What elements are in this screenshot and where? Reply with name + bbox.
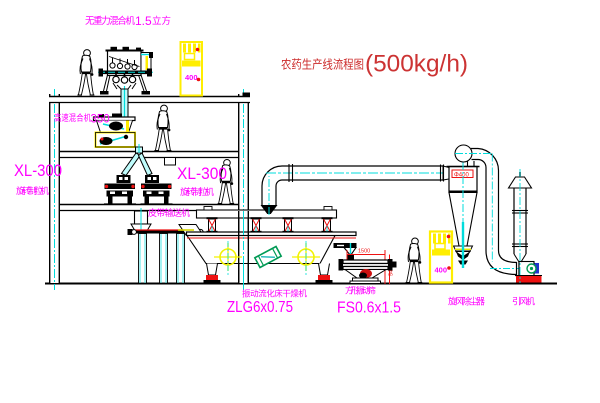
svg-text:FS0.6x1.5: FS0.6x1.5: [337, 300, 401, 317]
svg-text:1500: 1500: [358, 249, 370, 255]
svg-text:高速混合机: 高速混合机: [54, 112, 91, 123]
svg-text:(500kg/h): (500kg/h): [365, 51, 468, 78]
svg-text:振动流化床干燥机: 振动流化床干燥机: [242, 289, 307, 299]
svg-text:350: 350: [91, 114, 110, 126]
svg-text:400: 400: [435, 266, 448, 275]
svg-text:农药生产线流程图: 农药生产线流程图: [281, 57, 364, 72]
svg-text:1.5: 1.5: [135, 14, 152, 28]
svg-text:XL-300: XL-300: [177, 164, 227, 183]
svg-text:XL-300: XL-300: [14, 161, 62, 180]
svg-text:400: 400: [185, 73, 198, 82]
svg-text:ZLG6x0.75: ZLG6x0.75: [227, 299, 293, 316]
svg-text:方形振动筛: 方形振动筛: [345, 286, 376, 296]
svg-text:Φ400: Φ400: [454, 173, 469, 179]
svg-text:无重力混合机: 无重力混合机: [85, 15, 135, 27]
svg-text:旋风除尘器: 旋风除尘器: [448, 296, 485, 307]
svg-text:引风机: 引风机: [512, 296, 535, 307]
svg-text:立方: 立方: [152, 15, 171, 27]
svg-text:皮带输送机: 皮带输送机: [148, 207, 190, 218]
svg-text:旋转制粒机: 旋转制粒机: [16, 185, 49, 196]
svg-text:旋转制粒机: 旋转制粒机: [180, 186, 214, 197]
